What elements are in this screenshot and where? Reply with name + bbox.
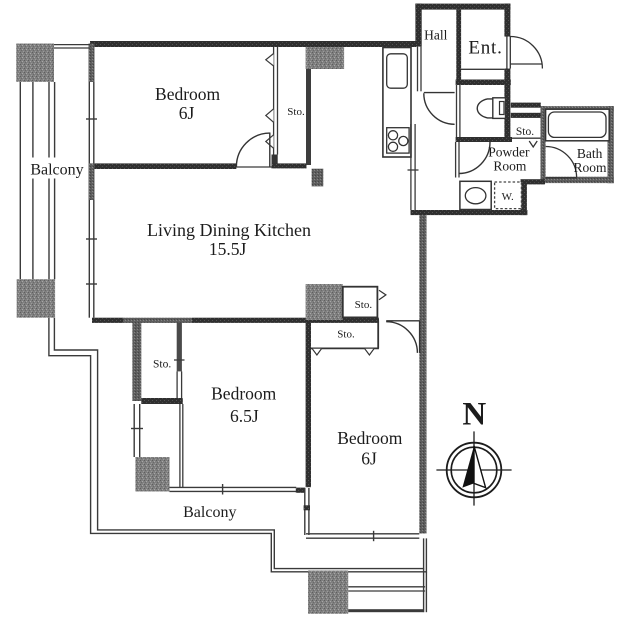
svg-text:Room: Room <box>493 159 527 174</box>
svg-text:N: N <box>462 397 486 433</box>
svg-text:6J: 6J <box>179 103 195 123</box>
svg-text:Bath: Bath <box>577 146 603 161</box>
svg-text:15.5J: 15.5J <box>209 239 247 259</box>
svg-text:6J: 6J <box>361 449 377 469</box>
svg-text:Powder: Powder <box>488 144 530 159</box>
svg-text:Hall: Hall <box>424 28 447 43</box>
svg-text:Bedroom: Bedroom <box>155 84 221 104</box>
svg-text:Sto.: Sto. <box>287 106 305 118</box>
svg-text:Room: Room <box>573 160 607 175</box>
svg-text:Living Dining Kitchen: Living Dining Kitchen <box>147 220 311 240</box>
svg-text:W.: W. <box>502 191 514 203</box>
svg-text:6.5J: 6.5J <box>230 406 259 426</box>
svg-text:Sto.: Sto. <box>355 299 373 311</box>
svg-text:Ent.: Ent. <box>468 38 502 59</box>
svg-text:Balcony: Balcony <box>183 504 236 521</box>
svg-text:Sto.: Sto. <box>516 126 534 138</box>
svg-text:Sto.: Sto. <box>337 329 355 341</box>
svg-text:Balcony: Balcony <box>30 162 83 179</box>
svg-text:Bedroom: Bedroom <box>211 384 277 404</box>
svg-text:Sto.: Sto. <box>153 359 171 371</box>
svg-text:Bedroom: Bedroom <box>337 428 403 448</box>
